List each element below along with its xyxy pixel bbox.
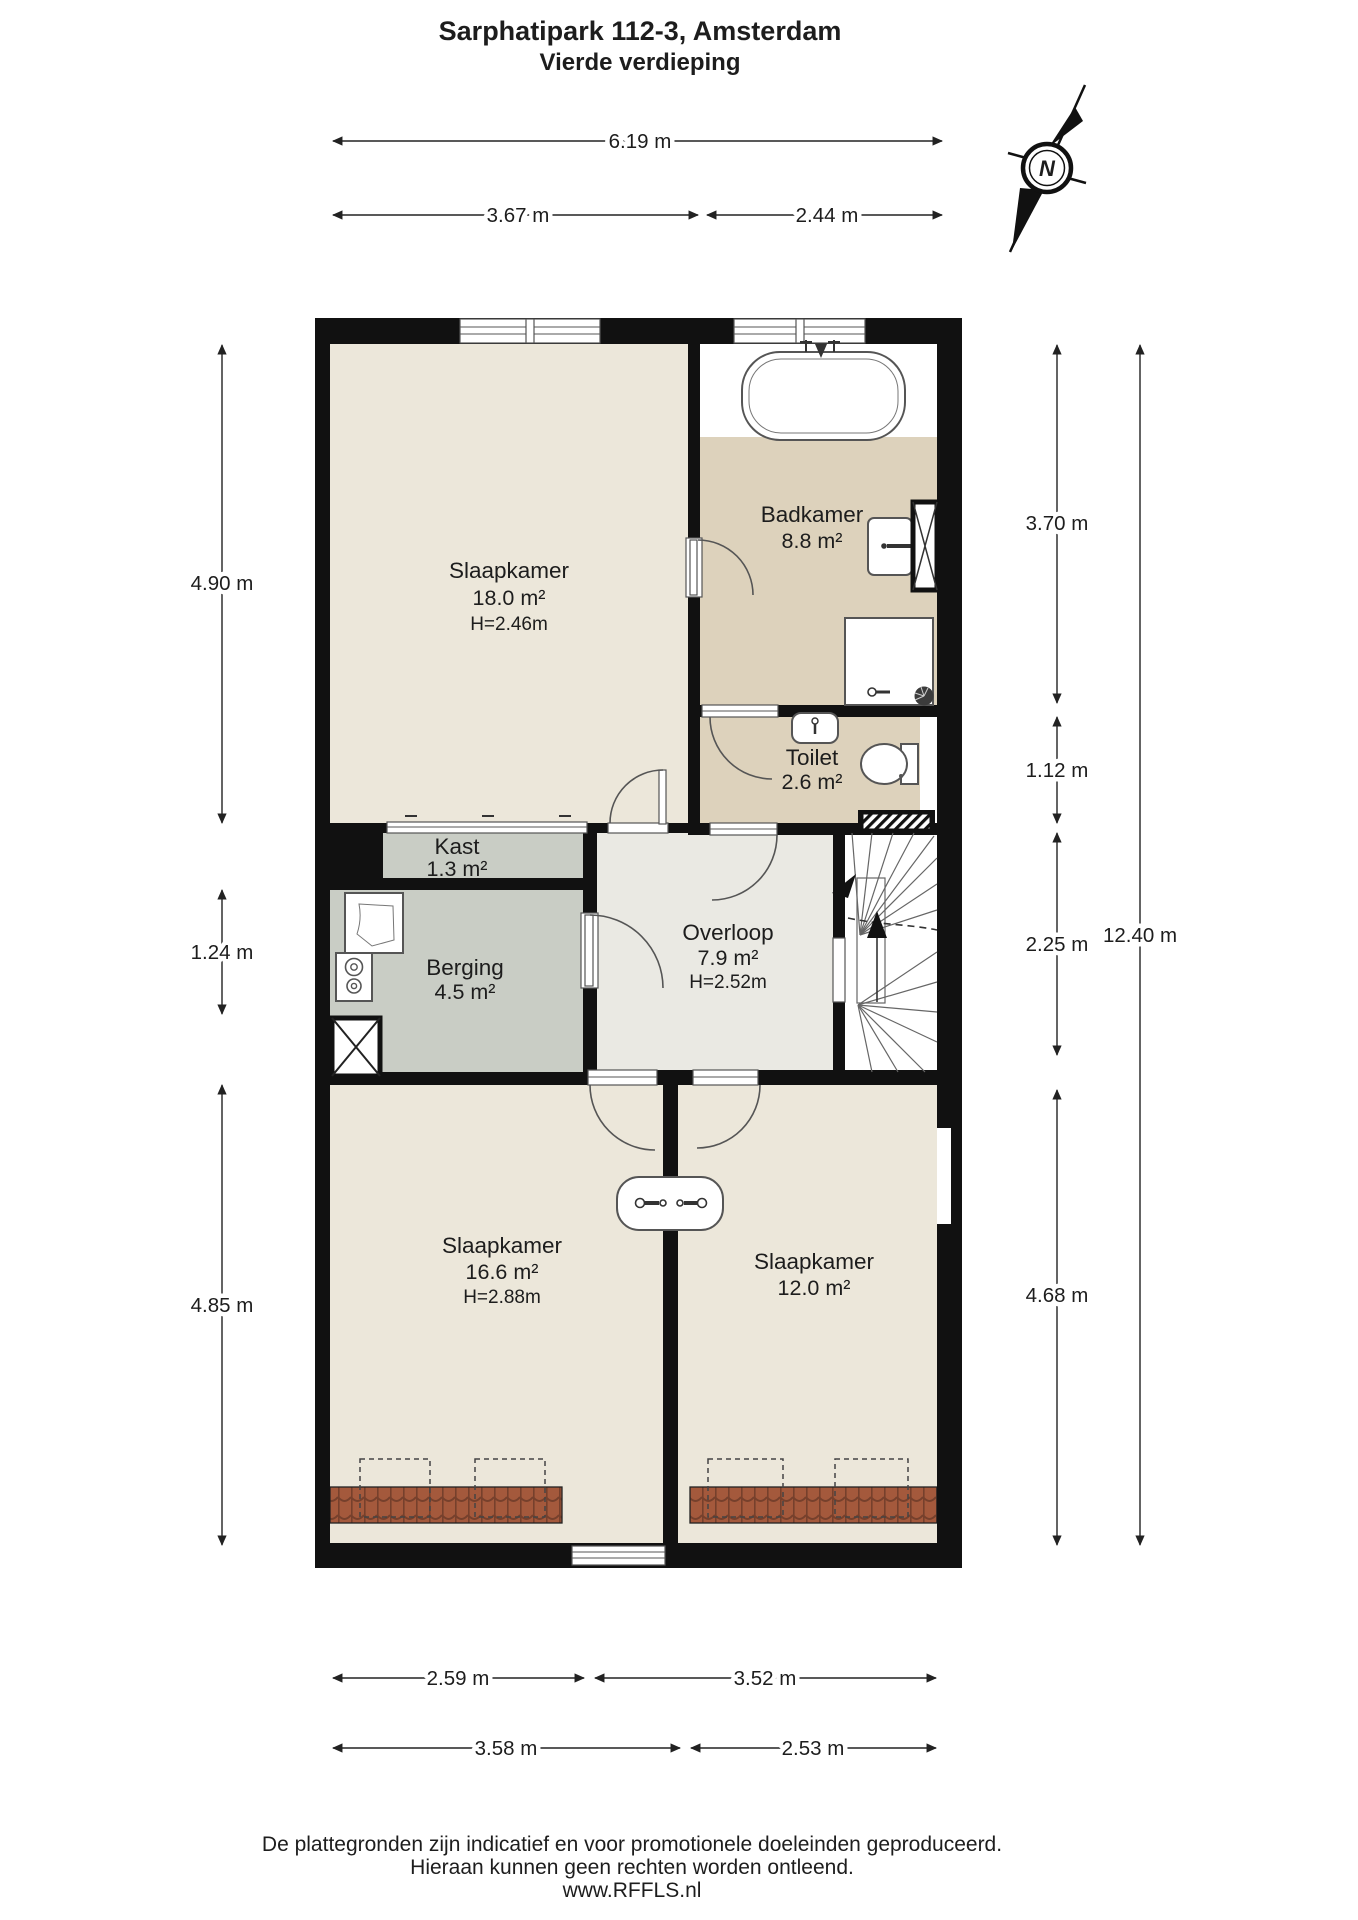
wall-segment [583,1070,588,1085]
floor-slaapkamer-2 [330,1085,663,1543]
dim-label-right-total: 12.40 m [1103,924,1177,947]
room-label-toilet: Toilet [786,745,839,770]
wall-segment [657,1070,693,1085]
dim-label-right-4: 4.68 m [1026,1284,1089,1307]
footer-disclaimer-2: Hieraan kunnen geen rechten worden ontle… [410,1856,854,1879]
wall-segment [663,1085,678,1543]
room-label-slaapkamer-1: Slaapkamer [449,558,570,583]
window [572,1546,665,1565]
dim-label-left-1: 4.90 m [191,572,254,595]
room-label-kast: Kast [434,834,480,859]
door-leaf [690,540,697,595]
room-label-berging: Berging [426,955,504,980]
page-subtitle: Vierde verdieping [540,49,741,76]
compass-north-label: N [1039,156,1056,181]
room-height-slaapkamer-1: H=2.46m [470,614,548,635]
shower [845,618,934,706]
room-label-slaapkamer-2: Slaapkamer [442,1233,563,1258]
shaft-x-icon [913,502,937,590]
dim-label-left-2: 1.24 m [191,941,254,964]
floorplan-page: Slaapkamer 18.0 m² H=2.46m Badkamer 8.8 … [0,0,1358,1920]
floor-toilet-side [920,717,937,823]
room-area-slaapkamer-3: 12.0 m² [778,1276,851,1300]
wall-segment [688,705,702,717]
bathtub [742,340,905,440]
dim-label-bottom-2: 3.52 m [734,1667,797,1690]
room-label-badkamer: Badkamer [761,502,864,527]
wall-segment [583,988,597,1075]
wall-niche [937,1128,951,1224]
room-area-badkamer: 8.8 m² [782,529,843,553]
floor-plan-svg: Slaapkamer 18.0 m² H=2.46m Badkamer 8.8 … [0,0,1358,1920]
radiator [617,1177,723,1230]
room-area-kast: 1.3 m² [427,857,488,881]
dim-label-top-right: 2.44 m [796,204,859,227]
stair-void-hatch [858,810,935,833]
room-label-slaapkamer-3: Slaapkamer [754,1249,875,1274]
room-area-slaapkamer-2: 16.6 m² [466,1260,539,1284]
shaft-x-icon [332,1018,380,1076]
floor-slaapkamer-3 [678,1085,937,1543]
wall-segment [688,344,700,540]
dim-label-left-3: 4.85 m [191,1294,254,1317]
toilet-bowl [861,744,918,784]
dim-label-right-3: 2.25 m [1026,933,1089,956]
wall-segment [583,832,597,913]
door-frame [833,938,845,1002]
boiler [336,953,372,1001]
bathroom-sink [868,518,912,575]
dim-label-top-total: 6.19 m [609,130,672,153]
wall-segment [937,318,962,1568]
room-area-slaapkamer-1: 18.0 m² [473,586,546,610]
compass-rose: N [1008,85,1086,252]
room-height-slaapkamer-2: H=2.88m [463,1287,541,1308]
washing-machine [345,893,403,953]
wall-segment [587,823,608,833]
dim-label-bottom-3: 3.58 m [475,1737,538,1760]
dim-label-right-2: 1.12 m [1026,759,1089,782]
compass-blade-south [1012,188,1044,250]
footer-disclaimer-1: De plattegronden zijn indicatief en voor… [262,1833,1002,1856]
window [460,319,600,343]
dim-label-right-1: 3.70 m [1026,512,1089,535]
room-area-toilet: 2.6 m² [782,770,843,794]
page-title: Sarphatipark 112-3, Amsterdam [439,16,842,46]
door-leaf [585,915,593,986]
door-leaf [659,770,666,824]
room-area-berging: 4.5 m² [435,980,496,1004]
wall-segment [758,1070,937,1085]
dim-label-bottom-4: 2.53 m [782,1737,845,1760]
window [734,319,865,343]
wall-segment [330,823,383,890]
compass-blade-north [1049,107,1083,147]
footer-website: www.RFFLS.nl [562,1879,702,1902]
wall-segment [315,318,330,1568]
floor-slaapkamer-1 [330,344,688,823]
room-label-overloop: Overloop [682,920,773,945]
dim-label-top-left: 3.67 m [487,204,550,227]
wall-segment [668,823,688,833]
room-height-overloop: H=2.52m [689,972,767,993]
wall-segment [688,823,710,835]
room-area-overloop: 7.9 m² [698,946,759,970]
wall-segment [833,1000,845,1075]
toilet-sink [792,713,838,743]
dim-label-bottom-1: 2.59 m [427,1667,490,1690]
